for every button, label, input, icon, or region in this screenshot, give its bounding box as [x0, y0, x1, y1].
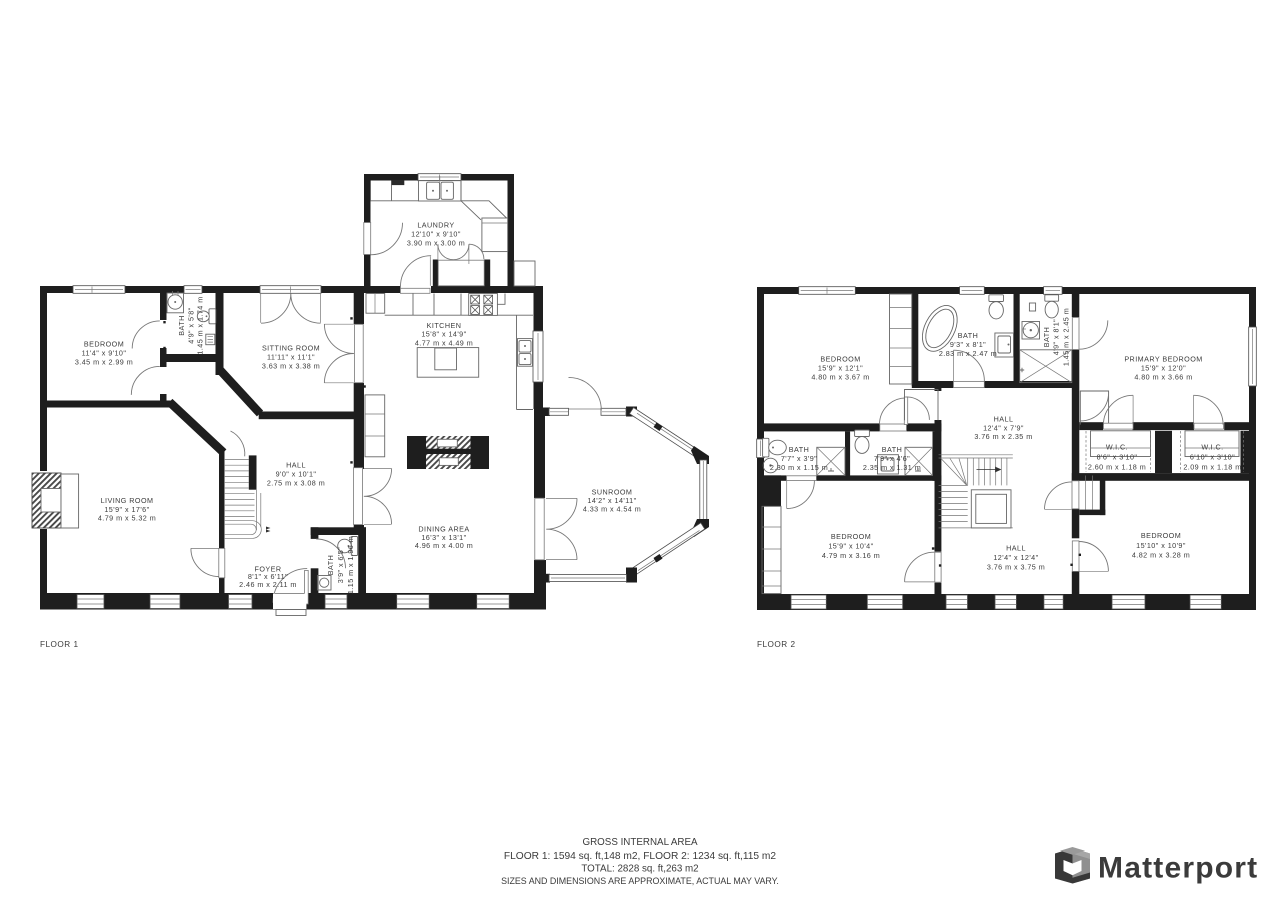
svg-text:FLOOR 1: 1594 sq. ft,148 m2, F: FLOOR 1: 1594 sq. ft,148 m2, FLOOR 2: 12…: [504, 851, 777, 862]
svg-text:8'6" x 3'10": 8'6" x 3'10": [1097, 452, 1138, 461]
svg-text:4.33 m x 4.54 m: 4.33 m x 4.54 m: [583, 505, 641, 514]
svg-text:2.83 m x 2.47 m: 2.83 m x 2.47 m: [939, 349, 997, 358]
svg-text:4.82 m x 3.28 m: 4.82 m x 3.28 m: [1132, 551, 1190, 560]
svg-text:4.96 m x 4.00 m: 4.96 m x 4.00 m: [415, 541, 473, 550]
svg-text:3'9" x 6'5": 3'9" x 6'5": [336, 547, 345, 583]
svg-text:BATH: BATH: [177, 315, 186, 335]
svg-text:3.76 m x 3.75 m: 3.76 m x 3.75 m: [987, 562, 1045, 571]
svg-text:15'9" x 17'6": 15'9" x 17'6": [104, 505, 149, 514]
svg-text:11'4" x 9'10": 11'4" x 9'10": [82, 349, 127, 358]
svg-text:W.I.C.: W.I.C.: [1106, 442, 1128, 451]
svg-text:4.77 m x 4.49 m: 4.77 m x 4.49 m: [415, 338, 473, 347]
svg-text:BEDROOM: BEDROOM: [1141, 531, 1181, 540]
svg-text:BATH: BATH: [958, 331, 978, 340]
svg-text:SIZES AND DIMENSIONS ARE APPRO: SIZES AND DIMENSIONS ARE APPROXIMATE, AC…: [501, 876, 779, 886]
svg-text:6'10" x 3'10": 6'10" x 3'10": [1190, 452, 1235, 461]
svg-text:2.75 m x 3.08 m: 2.75 m x 3.08 m: [267, 479, 325, 488]
svg-text:2.09 m x 1.18 m: 2.09 m x 1.18 m: [1183, 462, 1241, 471]
svg-text:3.90 m x 3.00 m: 3.90 m x 3.00 m: [407, 239, 465, 248]
svg-text:HALL: HALL: [994, 414, 1014, 423]
svg-text:12'4" x 7'9": 12'4" x 7'9": [983, 423, 1024, 432]
svg-text:1.45 m x 1.74 m: 1.45 m x 1.74 m: [196, 296, 205, 354]
svg-text:7'9" x 4'6": 7'9" x 4'6": [874, 454, 910, 463]
svg-text:15'8" x 14'9": 15'8" x 14'9": [421, 330, 466, 339]
svg-text:12'10" x 9'10": 12'10" x 9'10": [411, 230, 461, 239]
svg-text:PRIMARY BEDROOM: PRIMARY BEDROOM: [1124, 355, 1202, 364]
svg-text:4.79 m x 5.32 m: 4.79 m x 5.32 m: [98, 514, 156, 523]
svg-text:BATH: BATH: [326, 555, 335, 575]
svg-text:KITCHEN: KITCHEN: [427, 321, 462, 330]
svg-text:3.45 m x 2.99 m: 3.45 m x 2.99 m: [75, 358, 133, 367]
svg-text:LAUNDRY: LAUNDRY: [417, 221, 454, 230]
svg-text:4.80 m x 3.67 m: 4.80 m x 3.67 m: [811, 373, 869, 382]
svg-text:BEDROOM: BEDROOM: [831, 532, 871, 541]
svg-text:3.63 m x 3.38 m: 3.63 m x 3.38 m: [262, 362, 320, 371]
svg-text:15'9" x 12'1": 15'9" x 12'1": [818, 364, 863, 373]
svg-text:BATH: BATH: [1042, 327, 1051, 347]
svg-text:12'4" x 12'4": 12'4" x 12'4": [993, 553, 1038, 562]
svg-text:2.30 m x 1.15 m: 2.30 m x 1.15 m: [770, 463, 828, 472]
svg-text:3.76 m x 2.35 m: 3.76 m x 2.35 m: [974, 432, 1032, 441]
svg-text:1.45 m x 2.45 m: 1.45 m x 2.45 m: [1061, 308, 1070, 366]
svg-text:2.35 m x 1.31 m: 2.35 m x 1.31 m: [863, 463, 921, 472]
svg-text:15'10" x 10'9": 15'10" x 10'9": [1136, 541, 1186, 550]
svg-text:TOTAL: 2828 sq. ft,263 m2: TOTAL: 2828 sq. ft,263 m2: [581, 863, 698, 874]
svg-text:2.46 m x 2.11 m: 2.46 m x 2.11 m: [239, 580, 297, 589]
svg-text:4.80 m x 3.66 m: 4.80 m x 3.66 m: [1134, 373, 1192, 382]
svg-text:15'9" x 10'4": 15'9" x 10'4": [828, 542, 873, 551]
svg-text:BATH: BATH: [789, 445, 809, 454]
svg-text:9'3" x 8'1": 9'3" x 8'1": [950, 340, 986, 349]
svg-text:BATH: BATH: [882, 445, 902, 454]
svg-text:HALL: HALL: [286, 461, 306, 470]
svg-text:BEDROOM: BEDROOM: [820, 355, 860, 364]
svg-text:BEDROOM: BEDROOM: [84, 340, 124, 349]
svg-text:9'0" x 10'1": 9'0" x 10'1": [276, 470, 317, 479]
svg-text:11'11" x 11'1": 11'11" x 11'1": [267, 353, 315, 362]
svg-text:4.79 m x 3.16 m: 4.79 m x 3.16 m: [822, 551, 880, 560]
svg-text:7'7" x 3'9": 7'7" x 3'9": [781, 454, 817, 463]
svg-text:Matterport: Matterport: [1098, 852, 1258, 885]
svg-text:SITTING ROOM: SITTING ROOM: [262, 344, 320, 353]
svg-text:HALL: HALL: [1006, 544, 1026, 553]
svg-text:W.I.C.: W.I.C.: [1201, 442, 1223, 451]
svg-text:1.15 m x 1.96 m: 1.15 m x 1.96 m: [346, 536, 355, 594]
svg-text:GROSS INTERNAL AREA: GROSS INTERNAL AREA: [582, 837, 698, 848]
svg-text:FLOOR 1: FLOOR 1: [40, 640, 79, 649]
svg-text:15'9" x 12'0": 15'9" x 12'0": [1141, 364, 1186, 373]
svg-text:4'9" x 8'1": 4'9" x 8'1": [1052, 319, 1061, 355]
svg-text:4'9" x 5'8": 4'9" x 5'8": [186, 307, 195, 343]
svg-text:2.60 m x 1.18 m: 2.60 m x 1.18 m: [1088, 462, 1146, 471]
svg-text:LIVING ROOM: LIVING ROOM: [101, 496, 154, 505]
svg-text:FLOOR 2: FLOOR 2: [757, 640, 796, 649]
